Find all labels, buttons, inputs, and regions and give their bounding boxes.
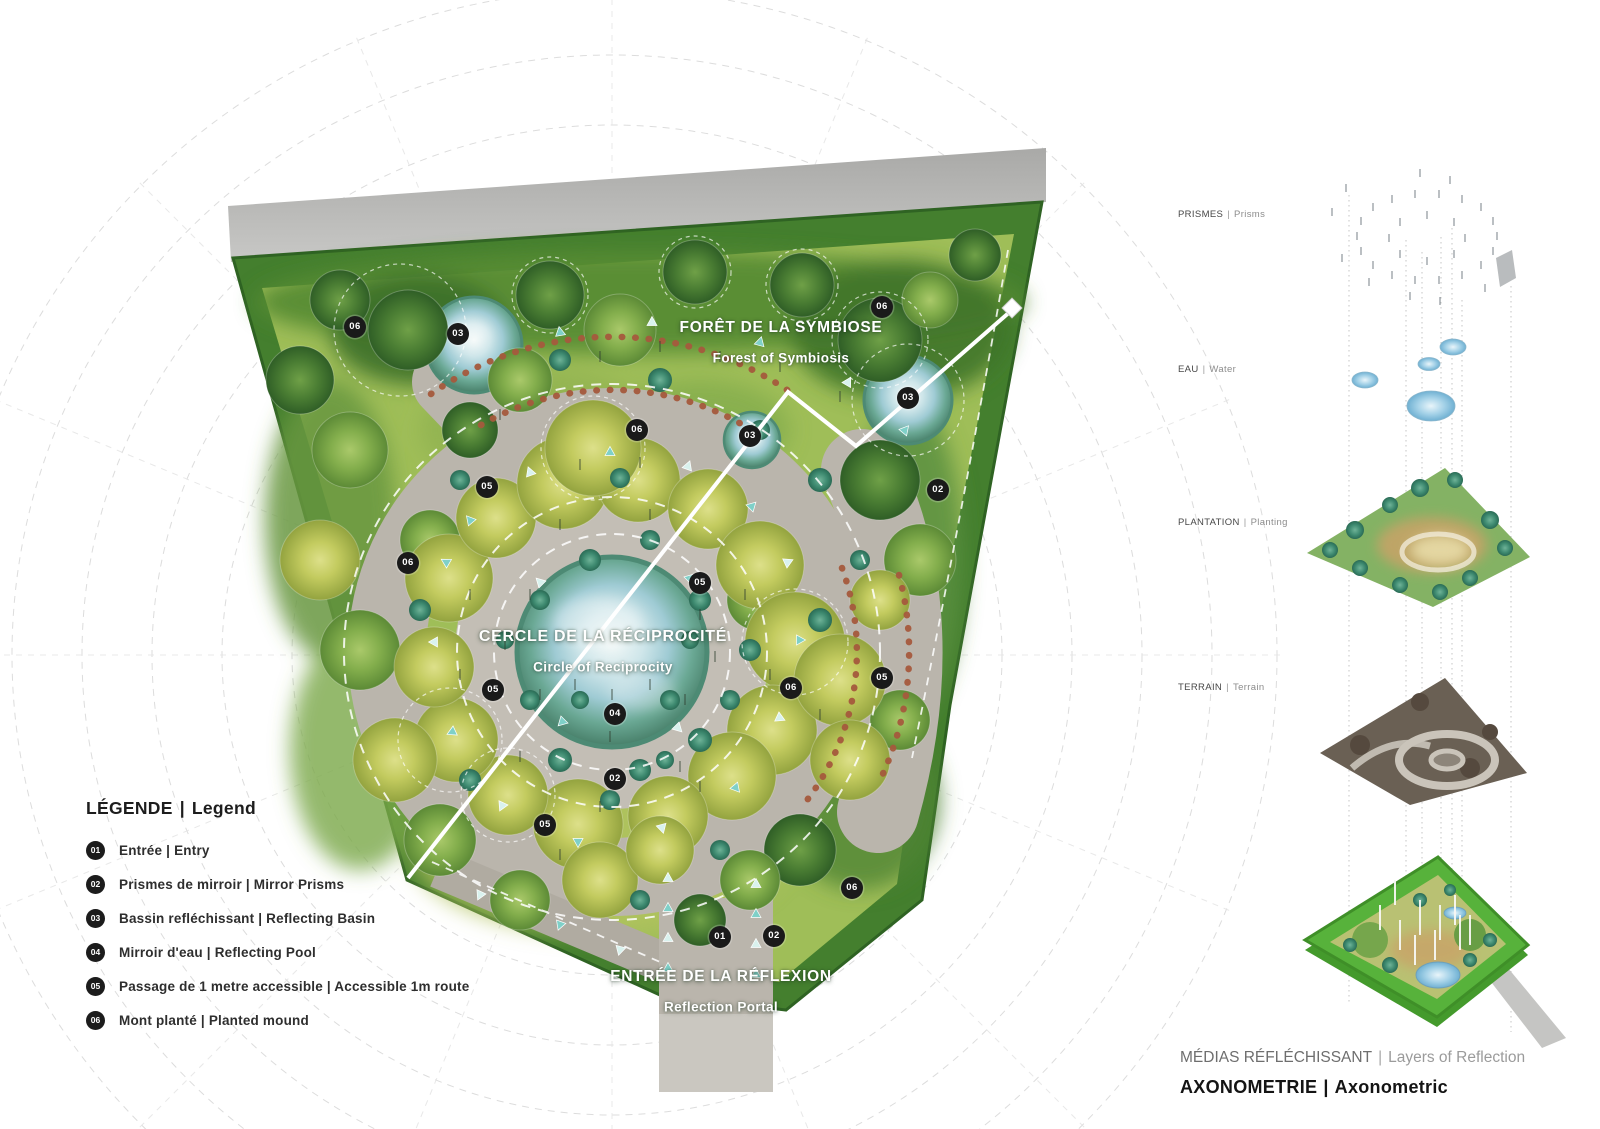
legend-item-prisms: 02 Prismes de mirroir | Mirror Prisms [86, 867, 469, 901]
axon-planting-layer [1307, 468, 1530, 607]
axon-title: AXONOMETRIE|Axonometric [1180, 1077, 1448, 1098]
axon-label-planting: PLANTATION|Planting [1178, 517, 1288, 528]
axon-subtitle-fr: MÉDIAS RÉFLÉCHISSANT [1180, 1049, 1372, 1066]
legend-title-fr: LÉGENDE [86, 798, 173, 818]
plan-badge-03-b: 03 [897, 387, 919, 409]
axon-label-planting-en: Planting [1251, 517, 1288, 528]
plan-badge-03-a: 03 [447, 323, 469, 345]
axon-entry-ramp [1488, 968, 1566, 1048]
legend-badge-04: 04 [86, 943, 105, 962]
axon-label-water-en: Water [1209, 364, 1236, 375]
poster-canvas: 01 02 02 02 03 03 03 04 05 05 05 05 05 0… [0, 0, 1600, 1129]
plan-badge-05-e: 05 [534, 814, 556, 836]
plan-badge-03-c: 03 [739, 425, 761, 447]
legend-label-basin: Bassin refléchissant | Reflecting Basin [119, 911, 375, 926]
plan-badge-05-b: 05 [689, 572, 711, 594]
plan-badge-06-f: 06 [841, 877, 863, 899]
axon-label-water-fr: EAU [1178, 364, 1199, 375]
axon-water-layer [1352, 339, 1466, 421]
forest-label-fr: FORÊT DE LA SYMBIOSE [680, 319, 883, 337]
legend-label-prisms: Prismes de mirroir | Mirror Prisms [119, 877, 344, 892]
plan-badge-02-a: 02 [927, 479, 949, 501]
axon-label-terrain-sep: | [1226, 682, 1229, 693]
forest-label-en: Forest of Symbiosis [713, 351, 850, 366]
axon-label-terrain: TERRAIN|Terrain [1178, 682, 1264, 693]
legend-badge-01: 01 [86, 841, 105, 860]
axon-central-pool [1416, 962, 1460, 988]
legend-item-basin: 03 Bassin refléchissant | Reflecting Bas… [86, 901, 469, 935]
plan-badge-05-c: 05 [871, 667, 893, 689]
legend: LÉGENDE|Legend 01 Entrée | Entry 02 Pris… [86, 798, 469, 1037]
axon-label-water: EAU|Water [1178, 364, 1236, 375]
legend-title-sep: | [180, 798, 185, 818]
axon-subtitle: MÉDIAS RÉFLÉCHISSANT|Layers of Reflectio… [1180, 1049, 1525, 1067]
axon-label-terrain-en: Terrain [1233, 682, 1265, 693]
axon-label-water-sep: | [1203, 364, 1206, 375]
axon-label-planting-sep: | [1244, 517, 1247, 528]
axon-terrain-layer [1320, 678, 1527, 805]
entry-label-fr: ENTRÉE DE LA RÉFLEXION [610, 968, 832, 986]
legend-label-pool: Mirroir d'eau | Reflecting Pool [119, 945, 316, 960]
axon-label-prisms-fr: PRISMES [1178, 209, 1223, 220]
axon-label-planting-fr: PLANTATION [1178, 517, 1240, 528]
legend-item-route: 05 Passage de 1 metre accessible | Acces… [86, 969, 469, 1003]
plan-badge-06-d: 06 [397, 552, 419, 574]
legend-item-pool: 04 Mirroir d'eau | Reflecting Pool [86, 935, 469, 969]
axon-prisms-layer [1332, 169, 1516, 305]
legend-item-entry: 01 Entrée | Entry [86, 833, 469, 867]
legend-title-en: Legend [192, 798, 256, 818]
plan-badge-06-a: 06 [344, 316, 366, 338]
axon-subtitle-en: Layers of Reflection [1388, 1049, 1525, 1066]
axon-title-sep: | [1323, 1077, 1328, 1097]
axon-mirror-panel [1496, 250, 1516, 287]
legend-badge-03: 03 [86, 909, 105, 928]
circle-label-en: Circle of Reciprocity [533, 660, 673, 675]
legend-label-route: Passage de 1 metre accessible | Accessib… [119, 979, 469, 994]
circle-label-fr: CERCLE DE LA RÉCIPROCITÉ [479, 628, 727, 646]
plan-badge-02-b: 02 [604, 768, 626, 790]
axon-title-fr: AXONOMETRIE [1180, 1077, 1317, 1097]
legend-badge-02: 02 [86, 875, 105, 894]
legend-item-mound: 06 Mont planté | Planted mound [86, 1003, 469, 1037]
plan-badge-01: 01 [709, 926, 731, 948]
axonometric-diagram [1305, 169, 1566, 1048]
legend-title: LÉGENDE|Legend [86, 798, 469, 819]
plan-badge-05-a: 05 [476, 476, 498, 498]
legend-badge-06: 06 [86, 1011, 105, 1030]
axon-label-prisms-en: Prisms [1234, 209, 1265, 220]
legend-badge-05: 05 [86, 977, 105, 996]
plan-badge-06-b: 06 [871, 296, 893, 318]
legend-label-mound: Mont planté | Planted mound [119, 1013, 309, 1028]
legend-label-entry: Entrée | Entry [119, 843, 210, 858]
plan-badge-06-c: 06 [626, 419, 648, 441]
axon-title-en: Axonometric [1335, 1077, 1448, 1097]
entry-label-en: Reflection Portal [664, 1000, 778, 1015]
axon-composite-layer [1305, 857, 1566, 1048]
axon-label-prisms: PRISMES|Prisms [1178, 209, 1265, 220]
plan-badge-06-e: 06 [780, 677, 802, 699]
axon-subtitle-sep: | [1378, 1049, 1382, 1066]
plan-badge-02-c: 02 [763, 925, 785, 947]
axon-label-terrain-fr: TERRAIN [1178, 682, 1222, 693]
plan-badge-04: 04 [604, 703, 626, 725]
plan-badge-05-d: 05 [482, 679, 504, 701]
axon-label-prisms-sep: | [1227, 209, 1230, 220]
